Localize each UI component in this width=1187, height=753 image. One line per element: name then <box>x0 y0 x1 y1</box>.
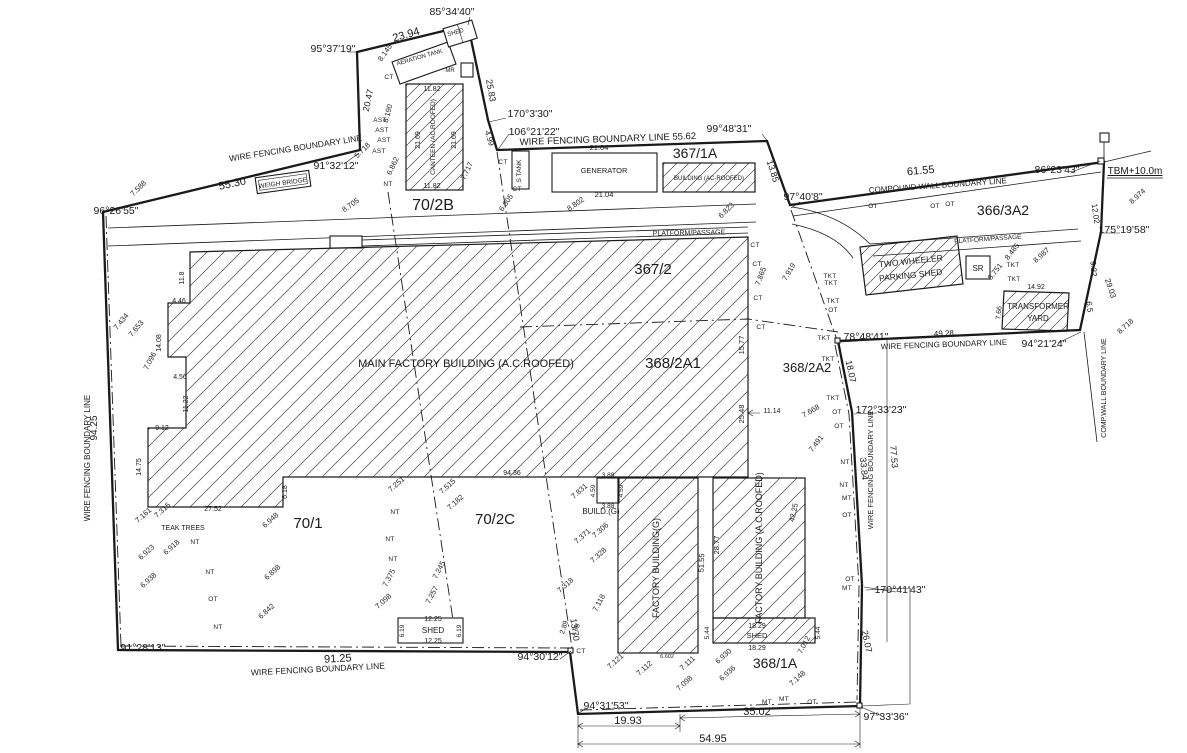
spot-level-label: 8.987 <box>1031 246 1051 265</box>
survey-marker: NT <box>840 459 849 466</box>
plot-number-label: 367/2 <box>634 261 672 278</box>
angle-label: 94°21'24" <box>1022 338 1067 350</box>
dimension-label: 14.08 <box>156 334 163 352</box>
survey-marker: OT <box>807 699 817 706</box>
survey-marker: AST <box>373 117 387 124</box>
survey-marker: AST <box>377 137 391 144</box>
spot-level-label: 8.705 <box>340 196 361 214</box>
dimension-label: 25.48 <box>737 405 746 424</box>
spot-level-label: 6.862 <box>385 156 401 177</box>
plot-number-label: 366/3A2 <box>977 202 1029 218</box>
survey-marker: TKT <box>1007 276 1020 283</box>
feature-text-label: WIRE FENCING BOUNDARY LINE <box>251 660 386 677</box>
dimension-label: 27.52 <box>204 506 222 513</box>
feature-text-label: WIRE FENCING BOUNDARY LINE <box>83 395 92 521</box>
dimension-label: 6.19 <box>399 624 406 637</box>
dimension-label: 9.22 <box>1088 261 1098 278</box>
build-g <box>597 478 619 503</box>
platform-end-box <box>330 236 362 248</box>
dimension-label: 20.47 <box>361 88 375 112</box>
spot-level-label: 6.842 <box>256 602 276 621</box>
feature-text-label: TEAK TREES <box>161 525 205 532</box>
dimension-label: 49.28 <box>934 328 955 338</box>
spot-level-label: 7.096 <box>141 350 158 371</box>
survey-marker: TKT <box>826 395 839 402</box>
corner-stone-2 <box>835 338 840 343</box>
angle-label: 94°31'53" <box>584 700 629 712</box>
dimension-label: 94.36 <box>503 470 521 477</box>
spot-level-label: 7.371 <box>572 527 592 546</box>
dimension-label: 94.25 <box>89 415 100 440</box>
survey-marker: CT <box>750 242 759 249</box>
spot-level-label: 7.919 <box>780 261 797 282</box>
dimension-label: 4.46 <box>172 298 186 305</box>
angle-label: 91°32'12" <box>314 160 359 172</box>
spot-level-label: 7.588 <box>128 178 148 198</box>
spot-level-label: 8.974 <box>1127 187 1147 206</box>
spot-level-label: 7.111 <box>678 654 697 673</box>
survey-marker: AST <box>375 127 389 134</box>
survey-marker: OT <box>930 203 940 210</box>
dim-11-14-leader <box>748 410 760 416</box>
feature-text-label: YARD <box>1027 314 1049 323</box>
feature-text-label: TBM+10.0m <box>1108 166 1163 177</box>
spot-level-label: 6.930 <box>713 647 733 666</box>
dimension-label: 4.99 <box>483 129 497 147</box>
survey-marker: OT <box>832 409 842 416</box>
spot-level-label: 6.923 <box>136 543 156 562</box>
feature-text-label: COMPOUND WALL BOUNDARY LINE <box>869 176 1008 195</box>
mr-box <box>461 63 473 77</box>
dimension-label: 35.02 <box>743 706 771 718</box>
transformer-yard <box>1002 291 1069 331</box>
survey-marker: CT <box>753 295 762 302</box>
spot-level-label: 7.865 <box>753 266 768 287</box>
site-plan-drawing: 70/2B367/1A366/3A2367/2368/2A1368/2A270/… <box>0 0 1187 753</box>
survey-marker: TKT <box>826 298 839 305</box>
angle-label: 91°28'13" <box>121 642 166 654</box>
survey-marker: TKT <box>823 273 836 280</box>
dimension-label: 11.22 <box>183 395 190 412</box>
angle-label: 99°48'31" <box>707 123 752 135</box>
dimension-label: 4.56 <box>173 374 187 381</box>
feature-text-label: MR <box>445 68 455 74</box>
dimension-label: 18.29 <box>748 623 766 630</box>
survey-marker: CT <box>512 186 521 193</box>
survey-marker: NT <box>213 624 222 631</box>
dimension-label: 12.02 <box>1090 203 1102 225</box>
dimension-label: 6.19 <box>456 624 463 637</box>
dimension-label: 12.25 <box>424 616 442 623</box>
dimension-label: 5.44 <box>704 626 711 639</box>
dimension-label: 21.69 <box>451 131 458 149</box>
compound-wall-inner-line <box>793 172 1101 216</box>
angle-label: 85°34'40" <box>430 6 475 18</box>
dimension-label: 23.94 <box>391 26 421 45</box>
dimension-label: 18.29 <box>748 645 766 652</box>
survey-marker: CT <box>756 324 765 331</box>
survey-marker: NT <box>190 539 199 546</box>
plot-number-label: 70/2C <box>475 511 515 528</box>
survey-marker: CT <box>576 648 585 655</box>
spot-level-label: 7.653 <box>127 318 146 338</box>
dimension-label: 3.88 <box>602 472 615 479</box>
spot-level-label: 7.161 <box>133 506 153 525</box>
dimension-label: 6.18 <box>282 485 289 499</box>
dimension-label: 29.03 <box>1103 277 1118 299</box>
feature-text-label: SR <box>972 264 983 273</box>
survey-marker: TKT <box>821 356 834 363</box>
dimension-label: 5.44 <box>815 626 822 639</box>
feature-text-label: S TANK <box>516 159 523 183</box>
angle-label: 96°26'55" <box>94 205 139 217</box>
survey-marker: CT <box>498 159 507 166</box>
spot-level-label: 6.805 <box>497 192 515 213</box>
feature-text-label: GENERATOR <box>581 166 628 175</box>
dimension-label: 28.77 <box>712 536 721 555</box>
dimension-label: 3.88 <box>602 503 615 510</box>
corner-stone-1 <box>1098 158 1104 164</box>
dimension-label: 54.95 <box>699 733 727 745</box>
survey-plan-page: 70/2B367/1A366/3A2367/2368/2A1368/2A270/… <box>0 0 1187 753</box>
feature-text-label: COMP.WALL BOUNDARY LINE <box>1101 338 1108 438</box>
spot-level-label: 7.491 <box>807 433 826 453</box>
dimension-label: 15.77 <box>737 336 746 355</box>
angle-label: 175°19'58" <box>1099 224 1150 236</box>
dimension-label: 2.89 <box>559 620 570 635</box>
plot-number-label: 368/2A1 <box>645 355 701 372</box>
angle-label: 170°3'30" <box>508 108 553 120</box>
spot-level-label: 6.936 <box>717 664 737 683</box>
dimension-label: 14.75 <box>136 458 143 476</box>
survey-marker: TKT <box>824 280 837 287</box>
survey-marker: OT <box>845 576 855 583</box>
spot-level-label: 7.318 <box>555 576 575 595</box>
plot-number-label: 70/2B <box>412 197 454 214</box>
spot-level-label: 6.602 <box>660 654 674 660</box>
survey-marker: OT <box>828 307 838 314</box>
spot-level-label: 7.148 <box>787 669 807 688</box>
angle-label: 86°23'43" <box>1035 164 1080 176</box>
dimension-label: 19.93 <box>614 715 642 727</box>
survey-marker: OT <box>834 423 844 430</box>
survey-marker: MT <box>779 696 789 703</box>
feature-text-label: FACTORY BUILDING(G) <box>651 518 661 618</box>
feature-text-label: WIRE FENCING BOUNDARY LINE <box>228 133 363 164</box>
dimension-label: 11.14 <box>764 408 781 415</box>
dimension-label: 51.55 <box>697 553 707 572</box>
survey-marker: NT <box>383 181 392 188</box>
survey-marker: MT <box>762 699 772 706</box>
survey-marker: TKT <box>817 335 830 342</box>
dimension-label: 55.30 <box>218 175 247 192</box>
dimension-label: 77.53 <box>888 445 900 468</box>
survey-marker: CT <box>384 74 393 81</box>
spot-level-label: 7.098 <box>674 674 694 693</box>
spot-level-label: 8.485 <box>1003 241 1022 261</box>
dimension-label: 14.92 <box>1027 284 1045 291</box>
dimension-label: 11.82 <box>424 183 441 190</box>
boundary-dashline-bottom <box>120 646 858 710</box>
spot-level-label: 7.434 <box>112 311 131 331</box>
dimension-label: 9.12 <box>155 425 169 432</box>
spot-level-label: 7.245 <box>430 559 447 580</box>
spot-level-label: 6.898 <box>262 563 282 582</box>
dimension-label: 21.04 <box>595 190 614 199</box>
dimension-label: 11.82 <box>424 86 441 93</box>
feature-text-label: PLATFORM/PASSAGE <box>653 229 726 237</box>
angle-label: 172°33'23" <box>856 404 907 416</box>
dimension-label: 6.5 <box>1085 301 1095 313</box>
feature-text-label: BUILDING (AC-ROOFED) <box>674 176 744 182</box>
feature-text-label: CANTEEN (AC.ROOFED) <box>430 99 437 175</box>
boundary-stub-right <box>1104 151 1151 162</box>
feature-text-label: FACTORY BUILDING (A.C.ROOFED) <box>754 472 764 624</box>
angle-label: 95°37'19" <box>311 43 356 55</box>
compound-wall-south-stub <box>1084 332 1097 442</box>
survey-marker: OT <box>868 203 878 210</box>
dimension-label: 13.85 <box>765 159 781 184</box>
angle-label: 94°30'12" <box>518 651 563 663</box>
survey-marker: OT <box>842 512 852 519</box>
survey-marker: AST <box>372 148 386 155</box>
dimension-label: 4.59 <box>590 484 597 497</box>
feature-text-label: TRANSFORMER <box>1007 302 1069 311</box>
survey-marker: CT <box>752 261 761 268</box>
feature-text-label: SHED <box>747 631 768 640</box>
plot-number-label: 70/1 <box>293 515 322 532</box>
feature-text-label: MAIN FACTORY BUILDING (A.C.ROOFED) <box>358 358 574 370</box>
spot-level-label: 7.121 <box>605 652 625 671</box>
spot-level-label: 7.098 <box>373 592 393 611</box>
spot-level-label: 7.257 <box>423 584 440 605</box>
survey-marker: NT <box>205 569 214 576</box>
survey-marker: MT <box>842 495 852 502</box>
dimension-label: 7.66 <box>995 306 1003 320</box>
angle-label: 97°33'36" <box>864 711 909 723</box>
angle-label: 106°21'22" <box>509 126 560 138</box>
survey-marker: OT <box>208 596 218 603</box>
survey-marker: NT <box>390 509 399 516</box>
spot-level-label: 7.306 <box>590 521 610 540</box>
spot-level-label: 7.668 <box>800 402 821 419</box>
spot-level-label: 7.831 <box>569 482 589 501</box>
spot-level-label: 7.112 <box>635 659 655 678</box>
dimension-label: 33.84 <box>858 457 870 480</box>
tbm-flag <box>1100 133 1109 142</box>
spot-level-label: 6.918 <box>161 538 181 557</box>
plot-number-label: 367/1A <box>673 145 718 161</box>
spot-level-label: 8.145 <box>376 42 394 63</box>
survey-marker: MT <box>842 585 852 592</box>
dimension-label: 11.8 <box>179 271 186 284</box>
survey-marker: NT <box>839 482 848 489</box>
dimension-label: 25.83 <box>484 79 498 103</box>
angle-label: 78°48'41" <box>844 331 889 343</box>
survey-marker: NT <box>388 556 397 563</box>
corner-stone-4 <box>568 648 573 653</box>
survey-marker: OT <box>945 201 955 208</box>
feature-text-label: SHED <box>422 626 444 635</box>
dimension-label: 61.55 <box>907 164 935 178</box>
dimension-label: 4.59 <box>618 484 625 497</box>
plot-number-label: 368/1A <box>753 655 798 671</box>
angle-label: 170°41'43" <box>875 584 926 596</box>
dimension-label: 12.25 <box>424 638 442 645</box>
spot-level-label: 7.375 <box>380 567 397 588</box>
dimension-label: 21.04 <box>590 143 609 152</box>
spot-level-label: 7.118 <box>591 593 607 613</box>
survey-marker: TKT <box>1006 262 1019 269</box>
dimension-label: 21.69 <box>415 131 422 149</box>
boundary-dashline-left <box>106 216 121 646</box>
spot-level-label: 7.328 <box>588 546 608 565</box>
spot-level-label: 8.718 <box>1115 317 1135 336</box>
spot-level-label: 7.182 <box>445 493 465 512</box>
spot-level-label: 6.948 <box>260 511 280 530</box>
dimension-label: 91.25 <box>324 652 352 665</box>
feature-text-label: WIRE FENCING BOUNDARY LINE <box>881 338 1008 351</box>
angle-label: 97°40'8" <box>783 191 822 203</box>
spot-level-label: 6.823 <box>716 200 736 220</box>
spot-level-label: 7.515 <box>437 477 457 496</box>
spot-level-label: 6.938 <box>138 571 158 590</box>
survey-marker: NT <box>385 536 394 543</box>
